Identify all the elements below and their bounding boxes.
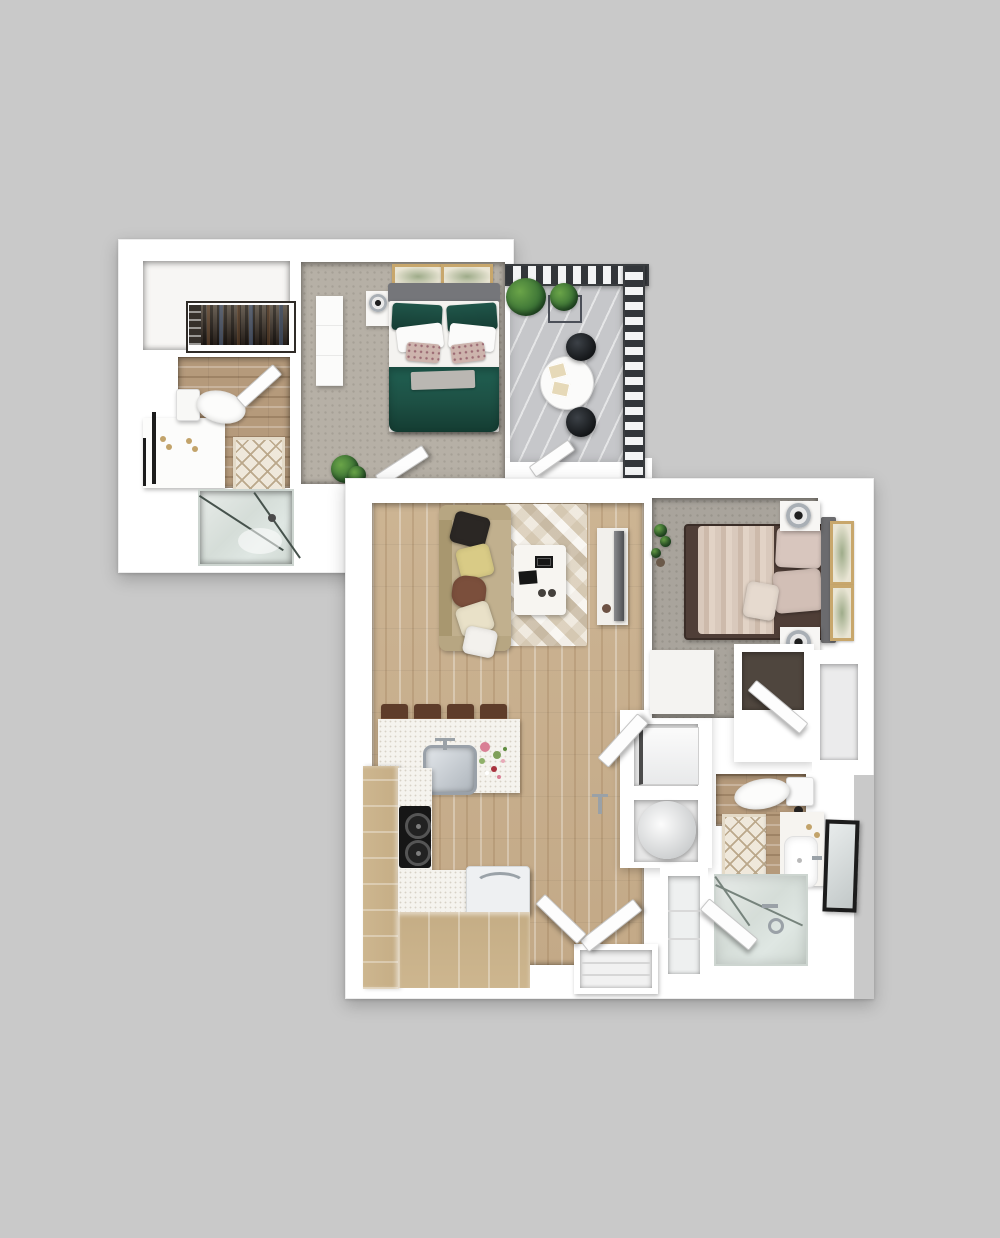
burner-1 (405, 813, 431, 839)
kitchen-bottom-cabinets (398, 912, 530, 988)
flower-vase-icon (480, 742, 490, 752)
lower-sink-drain (797, 858, 802, 863)
leaning-mirror (822, 819, 859, 912)
lower-bed-pillow-3 (742, 580, 780, 621)
gold-knob-2 (814, 832, 820, 838)
bedroom-plant-icon3 (651, 548, 661, 558)
hall-hook-icon (598, 796, 602, 814)
lower-art-frame-2 (830, 585, 854, 641)
burner-2 (405, 840, 431, 866)
bedroom-plant-pot (656, 558, 665, 567)
entry-closet-shelf-1 (668, 910, 700, 912)
hall-hook-bar (592, 794, 608, 797)
lower-art-frame-1 (830, 521, 854, 585)
sofa-back (439, 505, 452, 651)
tub-faucet-handle (768, 918, 784, 934)
entry-closet-shelf-2 (668, 938, 700, 940)
lower-toilet-tank (786, 777, 814, 806)
dryer (638, 801, 696, 859)
linen-closet-interior (820, 664, 858, 760)
entry-shelves-interior (580, 950, 652, 988)
entry-shelf-line-1 (582, 962, 650, 964)
tub-faucet-bar (762, 904, 778, 908)
bedroom-plant-icon2 (660, 536, 671, 547)
cup-1 (538, 589, 546, 597)
lower-dresser (650, 650, 714, 714)
cup-2 (548, 589, 556, 597)
kitchen-left-cabinets (363, 766, 399, 989)
lower-sink-faucet (812, 856, 822, 860)
floor-plan-image (0, 0, 1000, 1238)
lower-bed-pillow-1 (775, 527, 823, 569)
lower-bed-pillow-2 (772, 568, 823, 614)
lower-lamp-top-icon (786, 503, 811, 528)
remote-1 (535, 556, 553, 568)
entry-closet-interior (668, 876, 700, 974)
television (614, 531, 624, 621)
lower-unit (0, 0, 1000, 1238)
entry-shelf-line-2 (582, 974, 650, 976)
washer (639, 727, 699, 785)
gold-knob-1 (806, 824, 812, 830)
console-knob (602, 604, 611, 613)
sink-faucet-bar (435, 738, 455, 741)
lower-bath-mat (722, 814, 772, 880)
refrigerator-handle (474, 872, 526, 898)
remote-2 (518, 570, 537, 585)
